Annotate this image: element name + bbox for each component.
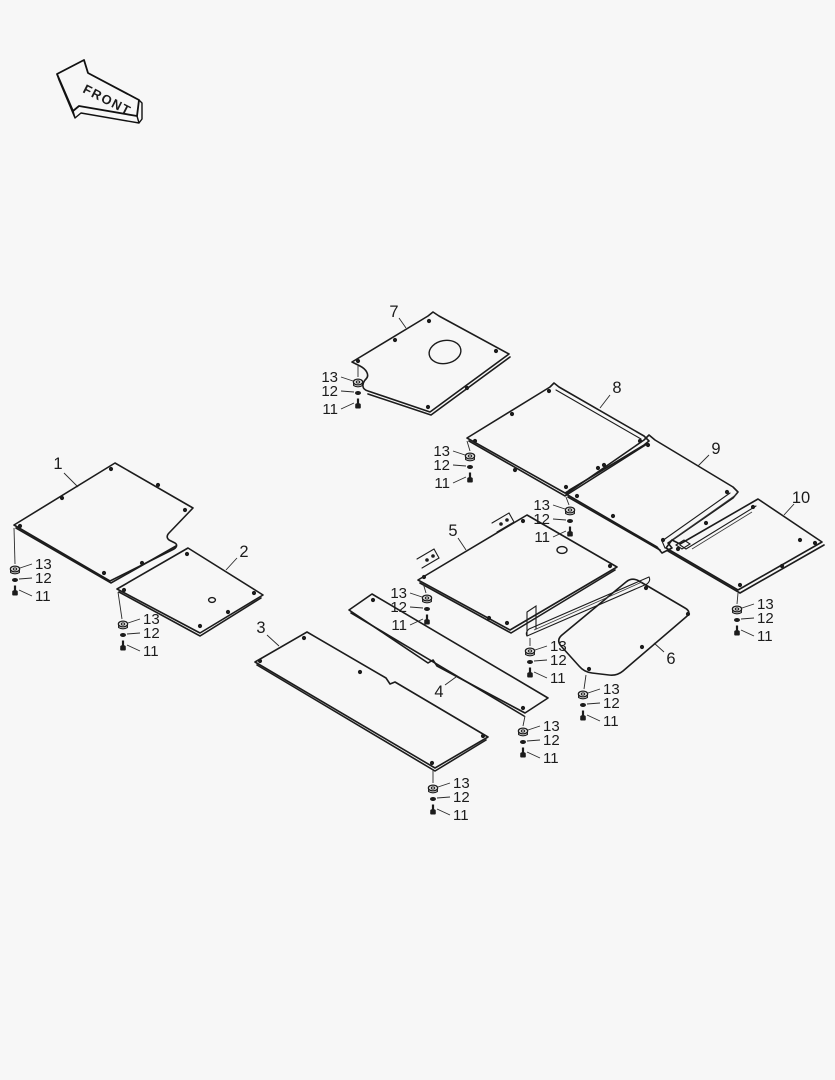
part-label-2: 2: [239, 543, 248, 561]
plate-7: [352, 312, 510, 415]
hardware-stacks-layer: 1312111312111312111312111312111312111312…: [10, 369, 773, 824]
hardware-label-11: 11: [322, 401, 338, 418]
exploded-parts-diagram: 1 2 3 4 5 6 7 8 9 10 1312111312111312111…: [0, 0, 835, 1080]
hardware-label-11: 11: [453, 807, 469, 824]
part-label-1: 1: [53, 455, 62, 473]
part-label-leaders: [64, 318, 794, 685]
hardware-stack: 131211: [321, 369, 362, 418]
plates-layer: [14, 312, 824, 771]
part-label-7: 7: [389, 303, 398, 321]
part-label-9: 9: [711, 440, 720, 458]
hardware-label-12: 12: [35, 570, 52, 587]
hardware-stack: 131211: [118, 611, 159, 660]
plate-4: [349, 594, 548, 716]
part-label-3: 3: [256, 619, 265, 637]
part-label-4: 4: [434, 683, 443, 701]
plate-8: [467, 383, 649, 496]
hardware-label-11: 11: [35, 588, 51, 605]
hardware-label-12: 12: [143, 625, 160, 642]
hardware-label-12: 12: [433, 457, 450, 474]
hardware-label-12: 12: [390, 599, 407, 616]
hardware-label-12: 12: [453, 789, 470, 806]
hardware-label-12: 12: [550, 652, 567, 669]
plate-2: [117, 548, 263, 636]
hardware-label-11: 11: [603, 713, 619, 730]
hardware-label-11: 11: [757, 628, 773, 645]
hardware-label-12: 12: [603, 695, 620, 712]
hardware-label-11: 11: [391, 617, 407, 634]
part-label-8: 8: [612, 379, 621, 397]
hardware-stack: 131211: [10, 556, 51, 605]
hardware-stack: 131211: [428, 775, 469, 824]
hardware-label-11: 11: [543, 750, 559, 767]
part-label-10: 10: [792, 489, 810, 507]
part-label-6: 6: [666, 650, 675, 668]
hardware-stack: 131211: [518, 718, 559, 767]
hardware-stack: 131211: [525, 638, 566, 687]
hardware-label-12: 12: [757, 610, 774, 627]
plate-10: [666, 499, 824, 593]
plate-3: [255, 632, 488, 771]
hardware-label-11: 11: [534, 529, 550, 546]
hardware-label-12: 12: [321, 383, 338, 400]
hardware-stack: 131211: [433, 443, 474, 492]
part-label-5: 5: [448, 522, 457, 540]
hardware-stack: 131211: [732, 596, 773, 645]
hardware-label-11: 11: [550, 670, 566, 687]
diagram-svg: 1 2 3 4 5 6 7 8 9 10 1312111312111312111…: [0, 0, 835, 1080]
hardware-stack: 131211: [578, 681, 619, 730]
part-labels: 1 2 3 4 5 6 7 8 9 10: [53, 303, 810, 701]
hardware-label-12: 12: [533, 511, 550, 528]
hardware-label-11: 11: [434, 475, 450, 492]
hardware-label-11: 11: [143, 643, 159, 660]
front-direction-arrow: FRONT: [57, 60, 142, 123]
hardware-label-12: 12: [543, 732, 560, 749]
